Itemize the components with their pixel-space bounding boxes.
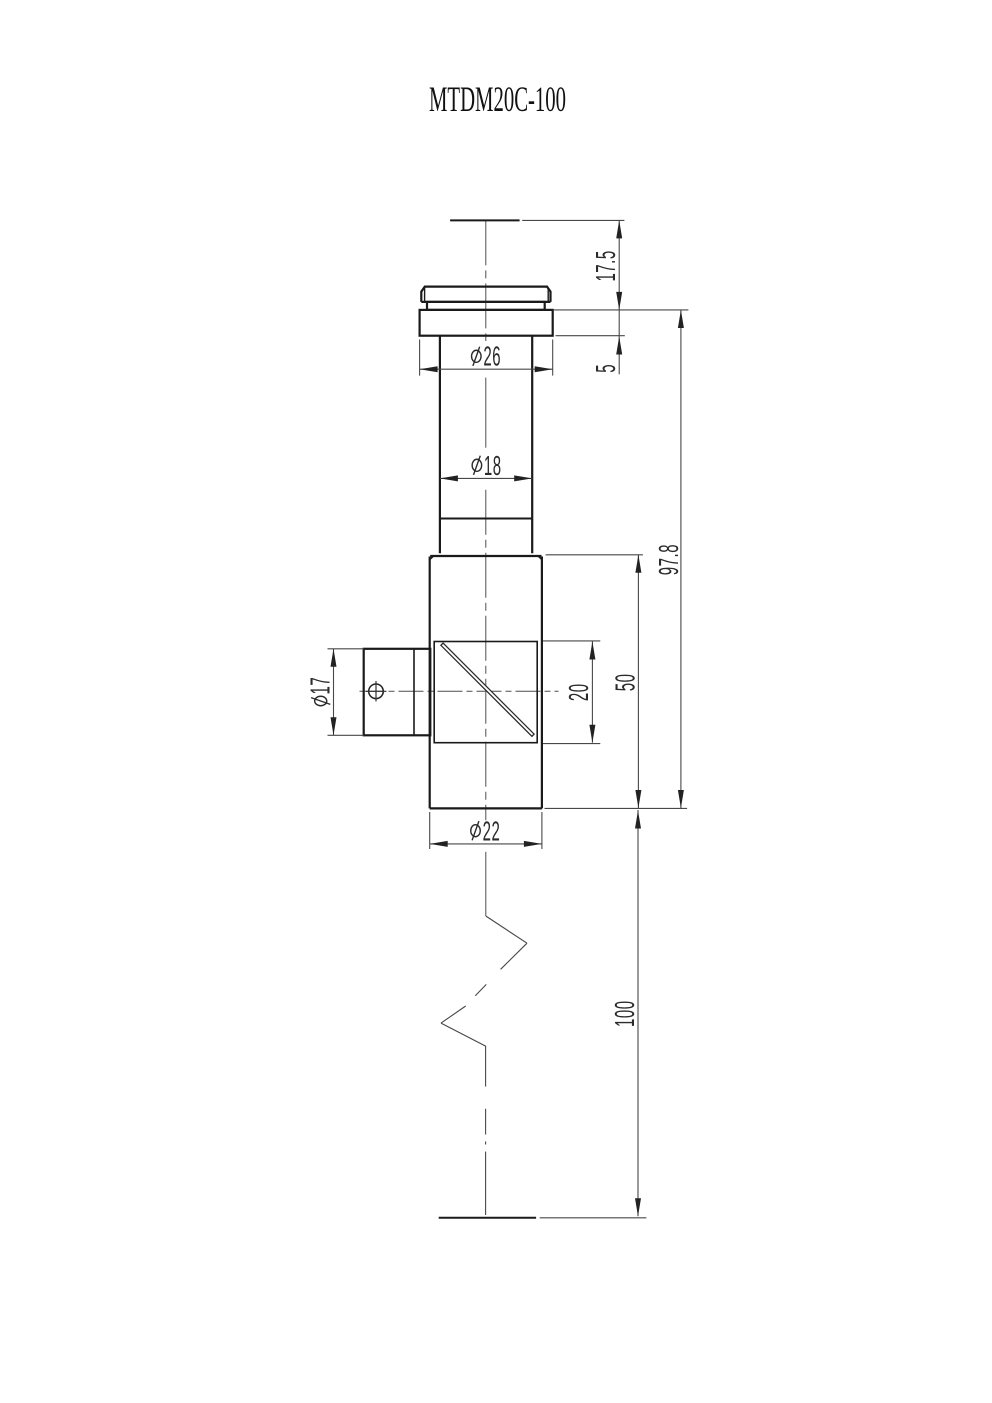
svg-text:17: 17 bbox=[305, 677, 336, 695]
svg-text:5: 5 bbox=[590, 364, 621, 373]
svg-text:MTDM20C-100: MTDM20C-100 bbox=[429, 80, 566, 119]
svg-text:20: 20 bbox=[563, 683, 594, 701]
svg-text:97.8: 97.8 bbox=[653, 544, 684, 575]
svg-text:26: 26 bbox=[483, 341, 501, 372]
svg-text:50: 50 bbox=[610, 674, 641, 692]
svg-text:17.5: 17.5 bbox=[590, 250, 621, 281]
svg-text:100: 100 bbox=[609, 1000, 640, 1027]
svg-text:22: 22 bbox=[483, 816, 501, 847]
svg-text:18: 18 bbox=[484, 450, 502, 481]
